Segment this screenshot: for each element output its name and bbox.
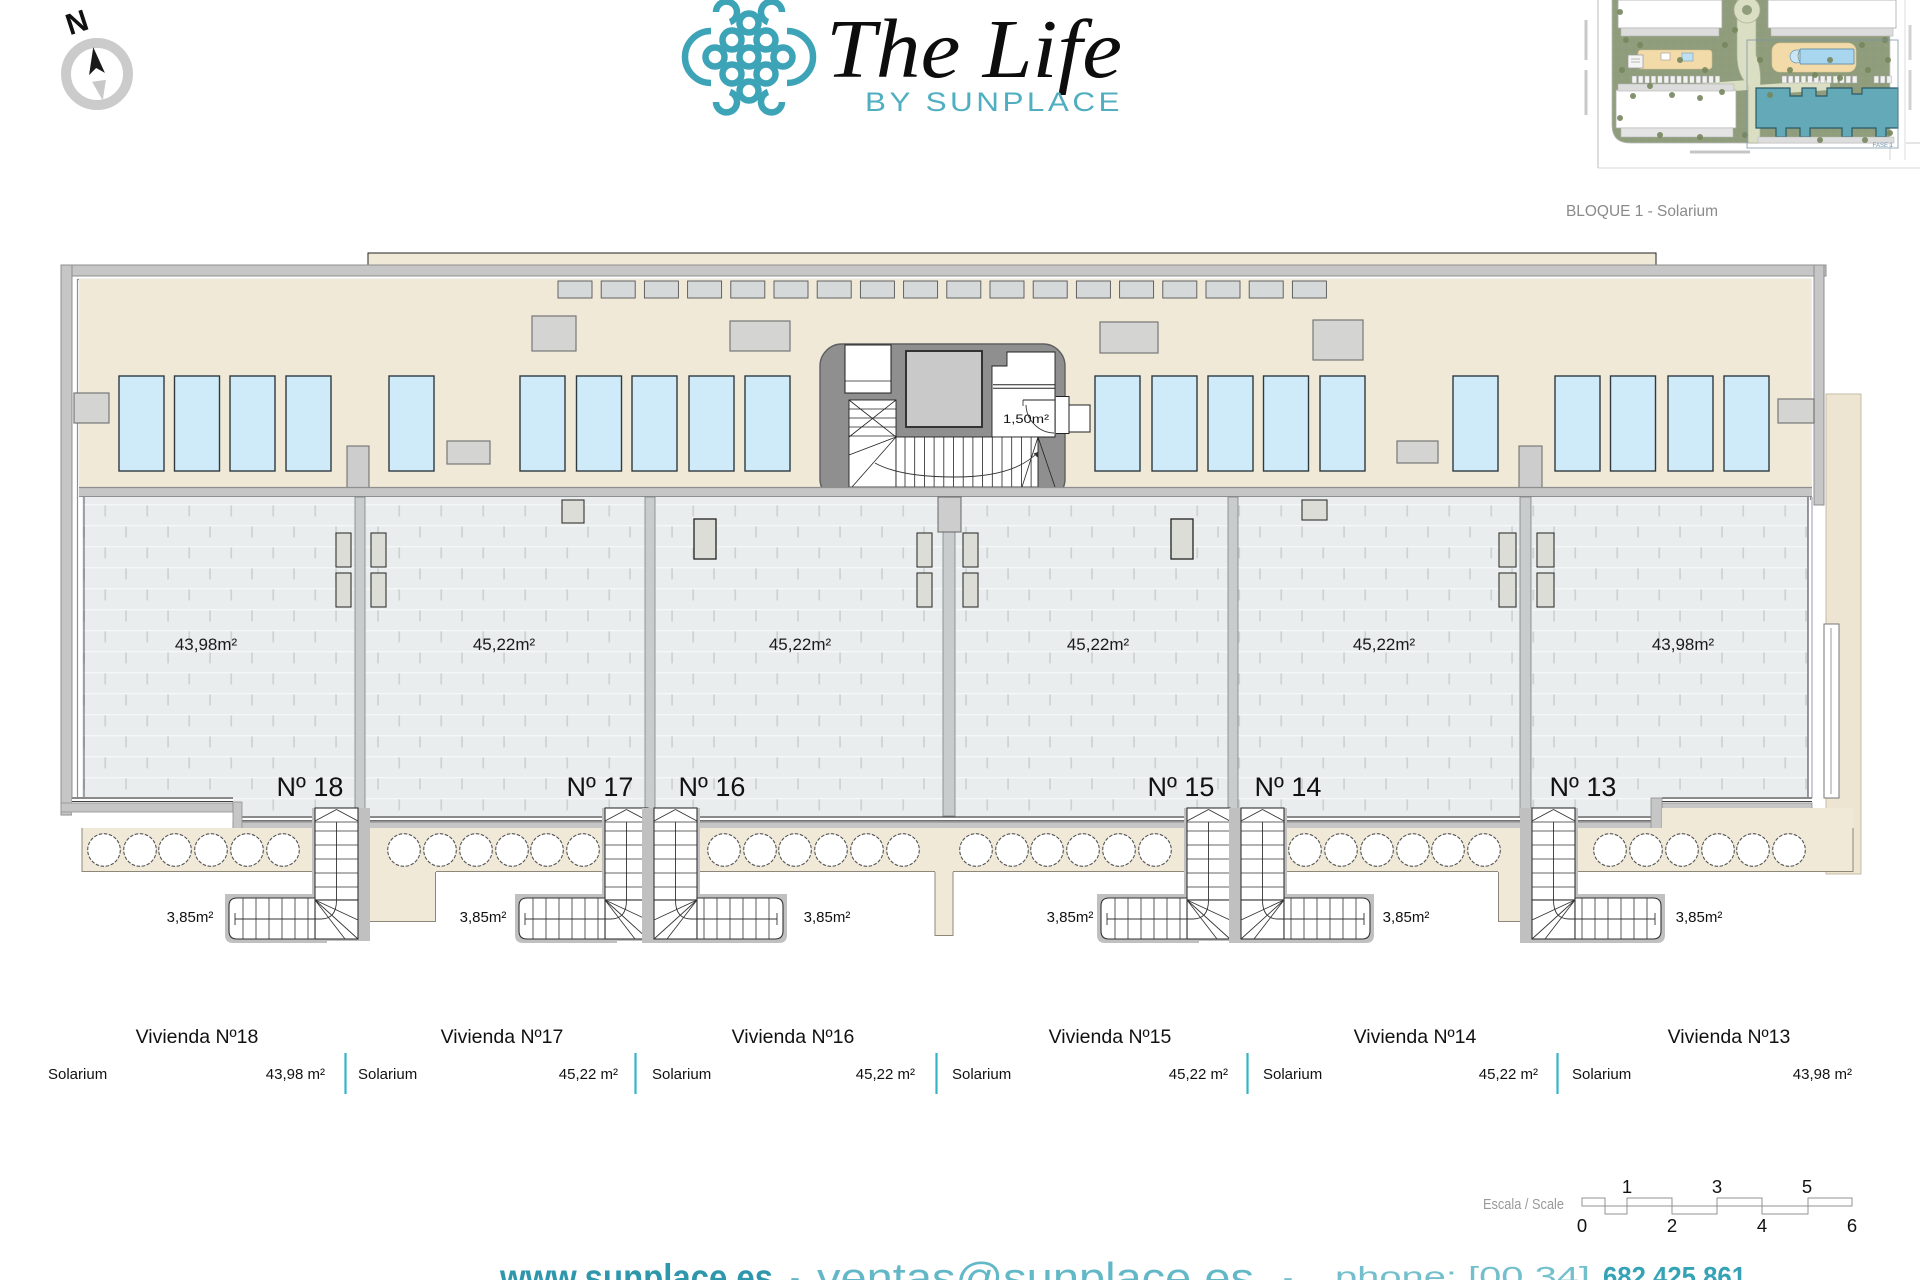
svg-text:Escala / Scale: Escala / Scale bbox=[1483, 1196, 1564, 1213]
svg-text:3,85m²: 3,85m² bbox=[460, 909, 507, 926]
svg-text:3,85m²: 3,85m² bbox=[1383, 909, 1430, 926]
svg-text:0: 0 bbox=[1577, 1215, 1587, 1236]
svg-text:Nº 18: Nº 18 bbox=[277, 772, 344, 802]
svg-text:Vivienda Nº18: Vivienda Nº18 bbox=[136, 1026, 259, 1048]
svg-text:Solarium: Solarium bbox=[652, 1066, 711, 1083]
svg-text:3,85m²: 3,85m² bbox=[804, 909, 851, 926]
svg-text:Nº 13: Nº 13 bbox=[1550, 772, 1617, 802]
svg-text:6: 6 bbox=[1847, 1215, 1857, 1236]
svg-text:BLOQUE 1 - Solarium: BLOQUE 1 - Solarium bbox=[1566, 203, 1718, 220]
svg-text:Solarium: Solarium bbox=[48, 1066, 107, 1083]
svg-text:Vivienda Nº14: Vivienda Nº14 bbox=[1354, 1026, 1477, 1048]
svg-text:45,22m²: 45,22m² bbox=[1353, 635, 1416, 654]
svg-text:BY SUNPLACE: BY SUNPLACE bbox=[865, 87, 1123, 117]
svg-text:ventas@sunplace.es: ventas@sunplace.es bbox=[817, 1254, 1254, 1280]
svg-text:Solarium: Solarium bbox=[952, 1066, 1011, 1083]
svg-text:Vivienda Nº13: Vivienda Nº13 bbox=[1668, 1026, 1791, 1048]
svg-text:Nº 15: Nº 15 bbox=[1148, 772, 1215, 802]
svg-text:4: 4 bbox=[1757, 1215, 1767, 1236]
svg-text:43,98 m²: 43,98 m² bbox=[266, 1066, 325, 1083]
svg-text:Nº 17: Nº 17 bbox=[567, 772, 634, 802]
svg-text:1: 1 bbox=[1622, 1176, 1632, 1197]
svg-text:FASE 1: FASE 1 bbox=[1873, 143, 1894, 149]
svg-text:Vivienda Nº16: Vivienda Nº16 bbox=[732, 1026, 855, 1048]
svg-text:45,22m²: 45,22m² bbox=[473, 635, 536, 654]
svg-text:43,98m²: 43,98m² bbox=[175, 635, 238, 654]
svg-text:-: - bbox=[790, 1261, 800, 1280]
svg-text:43,98m²: 43,98m² bbox=[1652, 635, 1715, 654]
svg-text:Vivienda Nº17: Vivienda Nº17 bbox=[441, 1026, 564, 1048]
svg-text:phone: [00 34]: phone: [00 34] bbox=[1335, 1261, 1590, 1280]
svg-text:1,50m²: 1,50m² bbox=[1003, 412, 1049, 426]
svg-text:Solarium: Solarium bbox=[358, 1066, 417, 1083]
svg-text:3,85m²: 3,85m² bbox=[167, 909, 214, 926]
svg-text:45,22 m²: 45,22 m² bbox=[1169, 1066, 1228, 1083]
svg-text:45,22m²: 45,22m² bbox=[769, 635, 832, 654]
svg-text:-: - bbox=[1283, 1261, 1293, 1280]
svg-text:www.sunplace.es: www.sunplace.es bbox=[499, 1257, 773, 1280]
svg-text:Vivienda Nº15: Vivienda Nº15 bbox=[1049, 1026, 1172, 1048]
svg-text:Solarium: Solarium bbox=[1572, 1066, 1631, 1083]
svg-text:45,22 m²: 45,22 m² bbox=[1479, 1066, 1538, 1083]
svg-text:The Life: The Life bbox=[826, 3, 1122, 96]
svg-text:Solarium: Solarium bbox=[1263, 1066, 1322, 1083]
svg-text:45,22 m²: 45,22 m² bbox=[856, 1066, 915, 1083]
svg-text:3: 3 bbox=[1712, 1176, 1722, 1197]
svg-text:3,85m²: 3,85m² bbox=[1676, 909, 1723, 926]
svg-text:5: 5 bbox=[1802, 1176, 1812, 1197]
svg-text:45,22m²: 45,22m² bbox=[1067, 635, 1130, 654]
svg-text:45,22 m²: 45,22 m² bbox=[559, 1066, 618, 1083]
svg-text:Nº 16: Nº 16 bbox=[679, 772, 746, 802]
svg-text:3,85m²: 3,85m² bbox=[1047, 909, 1094, 926]
svg-text:43,98 m²: 43,98 m² bbox=[1793, 1066, 1852, 1083]
svg-text:Nº 14: Nº 14 bbox=[1255, 772, 1322, 802]
svg-text:682 425 861: 682 425 861 bbox=[1603, 1261, 1746, 1280]
svg-text:2: 2 bbox=[1667, 1215, 1677, 1236]
